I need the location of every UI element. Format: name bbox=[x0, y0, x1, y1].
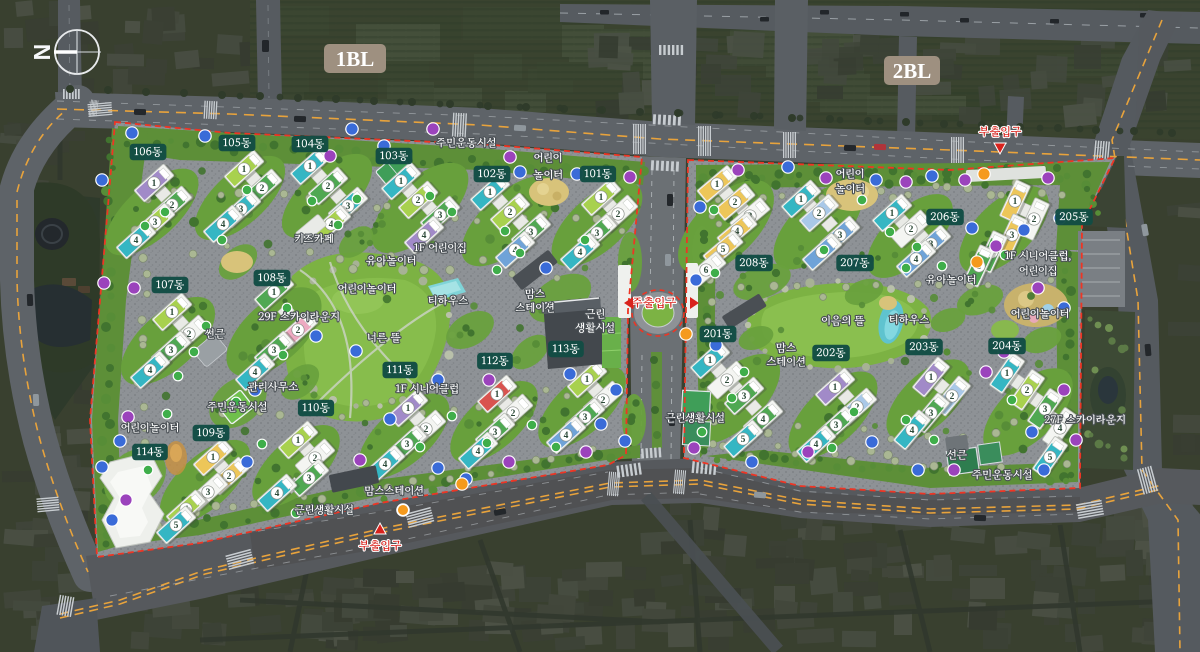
svg-text:1: 1 bbox=[170, 308, 175, 318]
svg-text:5: 5 bbox=[721, 245, 726, 255]
svg-text:4: 4 bbox=[134, 236, 139, 246]
svg-text:3: 3 bbox=[834, 421, 839, 431]
svg-text:4: 4 bbox=[383, 460, 388, 470]
svg-text:1: 1 bbox=[406, 404, 411, 414]
svg-text:3: 3 bbox=[1043, 405, 1048, 415]
svg-text:4: 4 bbox=[422, 231, 427, 241]
svg-text:1: 1 bbox=[152, 179, 157, 189]
svg-text:5: 5 bbox=[1048, 453, 1053, 463]
svg-text:1: 1 bbox=[399, 177, 404, 187]
svg-text:2: 2 bbox=[733, 198, 738, 208]
svg-text:4: 4 bbox=[578, 248, 583, 258]
svg-text:1: 1 bbox=[1005, 369, 1010, 379]
svg-text:2: 2 bbox=[909, 225, 914, 235]
svg-text:1BL: 1BL bbox=[336, 47, 375, 71]
svg-text:4: 4 bbox=[914, 255, 919, 265]
svg-text:1: 1 bbox=[708, 356, 713, 366]
svg-text:5: 5 bbox=[741, 435, 746, 445]
svg-text:2: 2 bbox=[508, 208, 513, 218]
svg-text:1: 1 bbox=[211, 453, 216, 463]
svg-text:1: 1 bbox=[585, 375, 590, 385]
svg-text:4: 4 bbox=[564, 431, 569, 441]
svg-text:1: 1 bbox=[833, 383, 838, 393]
svg-text:3: 3 bbox=[169, 346, 174, 356]
svg-text:3: 3 bbox=[742, 392, 747, 402]
svg-text:2: 2 bbox=[725, 376, 730, 386]
svg-text:2: 2 bbox=[616, 210, 621, 220]
svg-text:1: 1 bbox=[308, 162, 313, 172]
svg-text:4: 4 bbox=[1058, 424, 1063, 434]
svg-text:2: 2 bbox=[227, 472, 232, 482]
svg-text:1: 1 bbox=[929, 373, 934, 383]
svg-text:3: 3 bbox=[206, 488, 211, 498]
svg-text:6: 6 bbox=[704, 266, 709, 276]
svg-text:1: 1 bbox=[890, 209, 895, 219]
svg-text:2: 2 bbox=[296, 326, 301, 336]
svg-text:4: 4 bbox=[910, 426, 915, 436]
svg-text:1: 1 bbox=[242, 165, 247, 175]
svg-text:4: 4 bbox=[221, 220, 226, 230]
svg-text:1: 1 bbox=[272, 288, 277, 298]
svg-text:1: 1 bbox=[715, 180, 720, 190]
svg-text:4: 4 bbox=[253, 368, 258, 378]
svg-text:4: 4 bbox=[275, 489, 280, 499]
svg-text:N: N bbox=[29, 44, 55, 61]
svg-text:4: 4 bbox=[814, 440, 819, 450]
svg-text:2: 2 bbox=[326, 182, 331, 192]
svg-text:4: 4 bbox=[476, 447, 481, 457]
svg-text:2: 2 bbox=[1032, 215, 1037, 225]
svg-text:4: 4 bbox=[761, 415, 766, 425]
svg-text:3: 3 bbox=[307, 474, 312, 484]
svg-text:2BL: 2BL bbox=[893, 59, 932, 83]
svg-text:2: 2 bbox=[260, 184, 265, 194]
svg-text:2: 2 bbox=[416, 196, 421, 206]
svg-text:2: 2 bbox=[1025, 386, 1030, 396]
svg-text:1: 1 bbox=[599, 193, 604, 203]
svg-text:5: 5 bbox=[174, 521, 179, 531]
svg-text:1: 1 bbox=[488, 188, 493, 198]
svg-text:1: 1 bbox=[1013, 197, 1018, 207]
svg-text:1: 1 bbox=[799, 195, 804, 205]
svg-text:2: 2 bbox=[817, 209, 822, 219]
svg-text:3: 3 bbox=[1010, 231, 1015, 241]
svg-text:1: 1 bbox=[495, 390, 500, 400]
svg-text:4: 4 bbox=[148, 366, 153, 376]
svg-text:1: 1 bbox=[296, 436, 301, 446]
svg-text:3: 3 bbox=[272, 346, 277, 356]
svg-text:3: 3 bbox=[405, 440, 410, 450]
